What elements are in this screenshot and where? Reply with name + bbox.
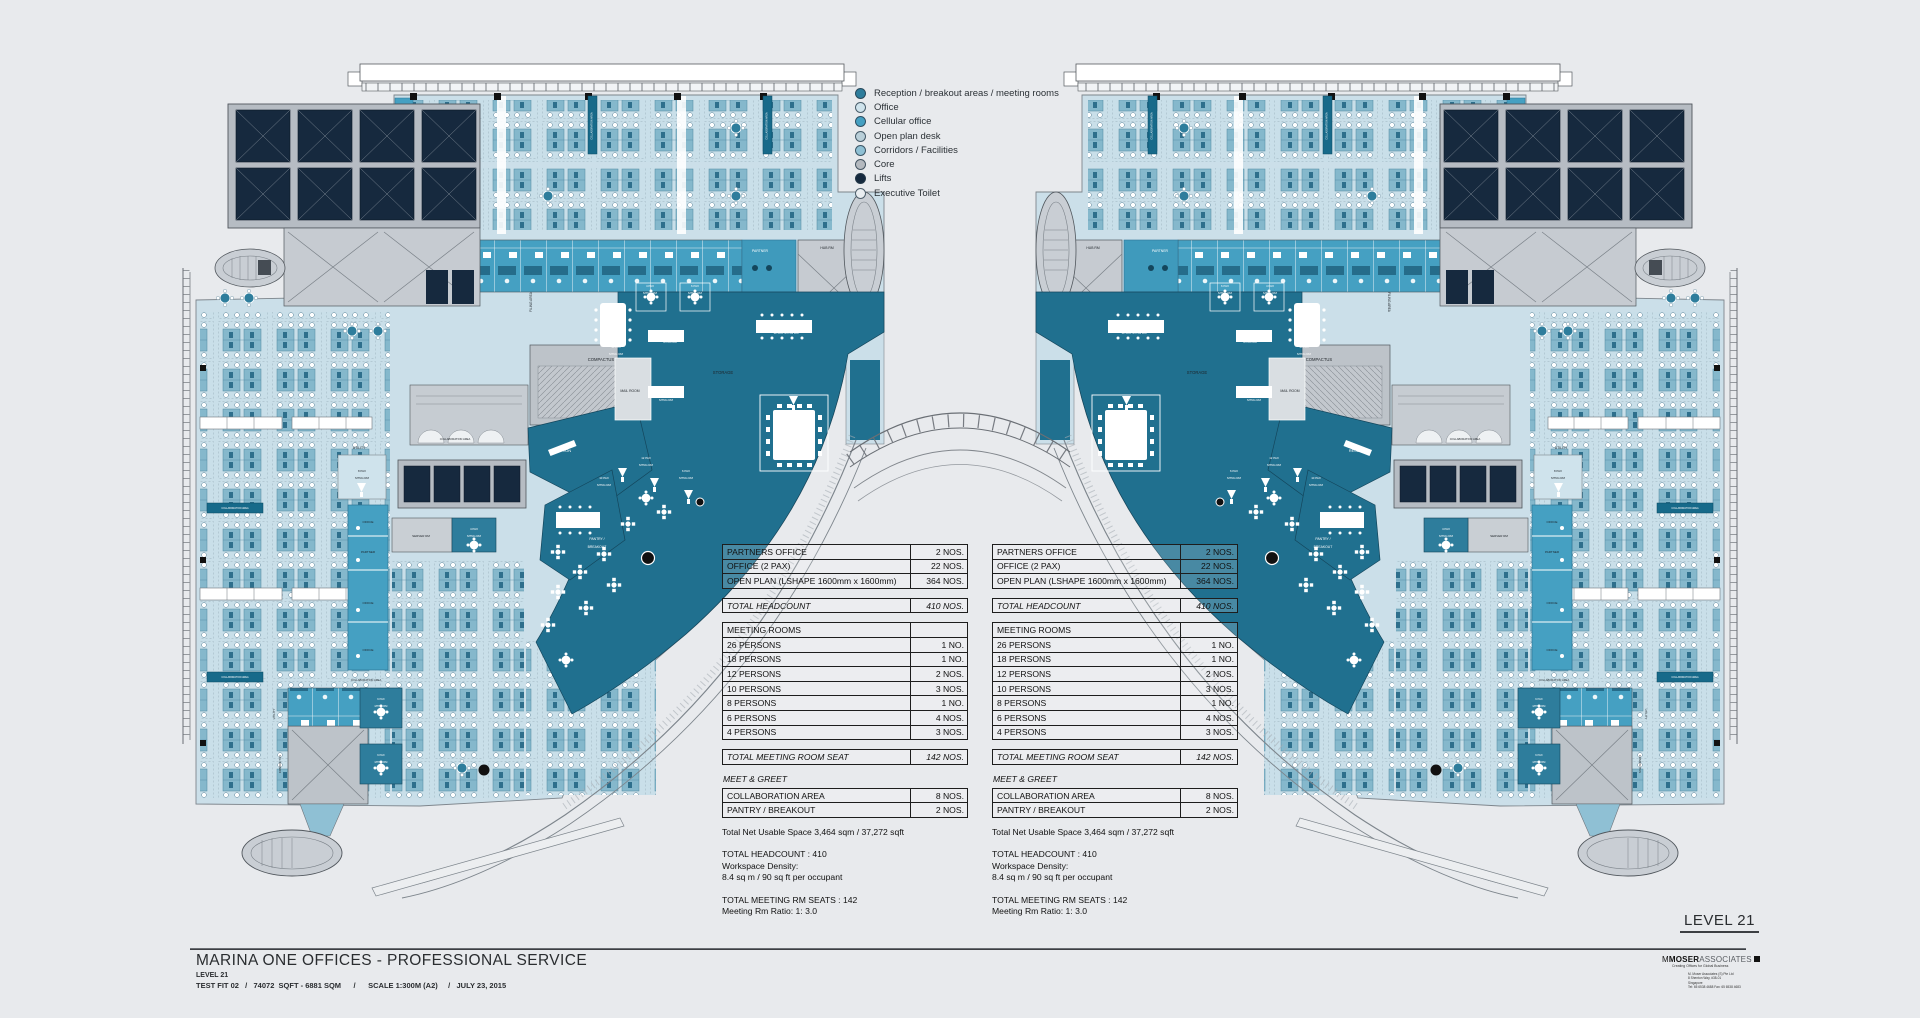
table-cell-label: PARTNERS OFFICE (723, 545, 911, 559)
legend-label: Cellular office (874, 116, 931, 127)
plan-room-label: 4 PAX (470, 527, 478, 531)
table-row: MEETING ROOMS (723, 623, 967, 638)
plan-room-label: 8 PAX (1554, 469, 1562, 473)
plan-room-label: COMPACTUS (278, 755, 282, 773)
legend-label: Executive Toilet (874, 188, 940, 199)
logo-square-icon (1754, 956, 1760, 962)
plan-room-label: FILING AREA (1387, 292, 1391, 313)
table-cell-value: 364 NOS. (1181, 574, 1237, 588)
plan-room-label: FILING AREA (529, 291, 533, 312)
plan-room-label: MTNG RM (1243, 340, 1257, 344)
plan-room-label: COLLABORATION AREA (221, 676, 249, 679)
table-row: TOTAL MEETING ROOM SEAT142 NOS. (723, 750, 967, 764)
plan-room-label: 12 PAX (1269, 456, 1279, 460)
table-section: PARTNERS OFFICE2 NOS.OFFICE (2 PAX)22 NO… (992, 544, 1238, 589)
table-row: 12 PERSONS2 NOS. (993, 667, 1237, 682)
legend-label: Corridors / Facilities (874, 145, 958, 156)
table-cell-label: TOTAL HEADCOUNT (993, 599, 1181, 613)
legend-swatch (855, 131, 866, 142)
table-cell-value: 3 NOS. (911, 726, 967, 740)
plan-room-label: MTNG RM (1218, 291, 1232, 295)
title-level: LEVEL 21 (196, 972, 587, 979)
table-row: 10 PERSONS3 NOS. (723, 682, 967, 697)
project-title: MARINA ONE OFFICES - PROFESSIONAL SERVIC… (196, 952, 587, 970)
table-row: COLLABORATION AREA8 NOS. (723, 789, 967, 804)
table-section: MEETING ROOMS26 PERSONS1 NO.18 PERSONS1 … (722, 622, 968, 740)
plan-room-label: 6 PAX (377, 697, 385, 701)
table-row: PARTNERS OFFICE2 NOS. (723, 545, 967, 560)
plan-room-label: MTNG RM (467, 534, 481, 538)
plan-room-label: MAIL ROOM (1280, 389, 1299, 393)
plan-room-label: 18 PAX (611, 345, 621, 349)
table-cell-value: 3 NOS. (1181, 682, 1237, 696)
table-cell-value: 410 NOS. (1181, 599, 1237, 613)
plan-room-label: COLLABORATION AREA (1539, 678, 1570, 682)
plan-room-label: OFFICE (363, 520, 374, 524)
table-row: OPEN PLAN (LSHAPE 1600mm x 1600mm)364 NO… (993, 574, 1237, 588)
summary-note: TOTAL HEADCOUNT : 410 (722, 849, 968, 861)
plan-room-label: UTILITY (1555, 446, 1568, 450)
plan-room-label: OFFICE (1547, 601, 1558, 605)
plan-room-label: COMPACTUS (588, 357, 615, 362)
plan-room-label: 4 PAX (1442, 527, 1450, 531)
plan-room-label: 10 PAX (665, 333, 675, 337)
logo-address: M. Moser Associates (S) Pte Ltd8 Shenton… (1688, 972, 1760, 989)
table-cell-label: PANTRY / BREAKOUT (993, 803, 1181, 817)
plan-room-label: OFFICE (363, 648, 374, 652)
table-row: COLLABORATION AREA8 NOS. (993, 789, 1237, 804)
table-row: 4 PERSONS3 NOS. (723, 726, 967, 740)
table-cell-value: 22 NOS. (911, 560, 967, 574)
plan-room-label: PANTRY / (1315, 537, 1330, 541)
table-cell-label: 12 PERSONS (723, 667, 911, 681)
plan-room-label: 10 PAX (1245, 333, 1255, 337)
table-row: 26 PERSONS1 NO. (993, 638, 1237, 653)
table-cell-label: 10 PERSONS (993, 682, 1181, 696)
plan-room-label: COMPACTUS (1306, 357, 1333, 362)
plan-room-label: 10 PAX (599, 476, 609, 480)
plan-room-label: MTNG RM (355, 476, 369, 480)
table-cell-value: 1 NO. (911, 653, 967, 667)
plan-room-label: 12 PAX MTNG RM (1121, 331, 1147, 335)
table-cell-label: 8 PERSONS (993, 696, 1181, 710)
legend-swatch (855, 173, 866, 184)
headcount-table-left: PARTNERS OFFICE2 NOS.OFFICE (2 PAX)22 NO… (722, 544, 968, 918)
table-section: TOTAL HEADCOUNT410 NOS. (992, 598, 1238, 614)
table-row: TOTAL MEETING ROOM SEAT142 NOS. (993, 750, 1237, 764)
table-row: 8 PERSONS1 NO. (723, 696, 967, 711)
table-cell-value: 2 NOS. (911, 803, 967, 817)
plan-room-label: 12 PAX MTNG RM (773, 331, 799, 335)
plan-room-label: PARTNER (361, 550, 376, 554)
table-cell-label: 6 PERSONS (993, 711, 1181, 725)
summary-note: Total Net Usable Space 3,464 sqm / 37,27… (992, 827, 1238, 839)
legend-label: Office (874, 102, 899, 113)
plan-room-label: COLLABORATION AREA (221, 507, 249, 510)
plan-room-label: MAIL ROOM (620, 389, 639, 393)
table-row: OFFICE (2 PAX)22 NOS. (993, 560, 1237, 575)
table-section: TOTAL HEADCOUNT410 NOS. (722, 598, 968, 614)
plan-room-label: COMPACTUS (1638, 755, 1642, 773)
plan-room-label: PARTNER (1152, 249, 1168, 253)
table-cell-value: 22 NOS. (1181, 560, 1237, 574)
summary-note: TOTAL HEADCOUNT : 410 (992, 849, 1238, 861)
plan-room-label: MTNG RM (609, 352, 623, 356)
table-cell-label: OPEN PLAN (LSHAPE 1600mm x 1600mm) (993, 574, 1181, 588)
plan-room-label: 4 PAX (1266, 284, 1274, 288)
summary-note: 8.4 sq m / 90 sq ft per occupant (722, 872, 968, 884)
plan-room-label: COLLABORATION AREA (351, 678, 382, 682)
plan-room-label: 6 PAX (1535, 753, 1543, 757)
summary-note: Meeting Rm Ratio: 1: 3.0 (992, 906, 1238, 918)
table-cell-value: 2 NOS. (1181, 667, 1237, 681)
legend-swatch (855, 145, 866, 156)
table-cell-label: 6 PERSONS (723, 711, 911, 725)
table-cell-value: 4 NOS. (911, 711, 967, 725)
table-cell-value: 1 NO. (911, 696, 967, 710)
title-block: MARINA ONE OFFICES - PROFESSIONAL SERVIC… (196, 952, 587, 990)
plan-room-label: COLLABORATION AREA (591, 112, 594, 140)
legend-item: Core (855, 157, 1059, 171)
plan-room-label: MTNG RM (1247, 398, 1261, 402)
table-section-heading: MEET & GREET (723, 774, 968, 785)
plan-room-label: 6 PAX (1221, 284, 1229, 288)
drawing-sheet: COMPACTUSSTORAGEPARTNERHUB RMFILING AREA… (0, 0, 1920, 1018)
table-cell-label: 18 PERSONS (993, 653, 1181, 667)
plan-room-label: HUB RM (1086, 246, 1100, 250)
table-cell-value: 364 NOS. (911, 574, 967, 588)
plan-room-label: 6 PAX (682, 469, 690, 473)
logo-tagline: Creating Offices for Global Business (1672, 964, 1760, 968)
table-cell-value: 4 NOS. (1181, 711, 1237, 725)
table-cell-value: 3 NOS. (1181, 726, 1237, 740)
plan-room-label: MTNG RM (1309, 483, 1323, 487)
plan-room-label: MTNG RM (1533, 760, 1547, 764)
table-cell-value: 410 NOS. (911, 599, 967, 613)
table-cell-value: 1 NO. (911, 638, 967, 652)
legend-swatch (855, 116, 866, 127)
plan-room-label: COLLABORATION AREA (1671, 507, 1699, 510)
table-cell-label: PANTRY / BREAKOUT (723, 803, 911, 817)
table-cell-label: TOTAL MEETING ROOM SEAT (723, 750, 911, 764)
plan-room-label: 6 PAX (377, 753, 385, 757)
plan-room-label: MTNG RM (1551, 476, 1565, 480)
table-cell-label: 10 PERSONS (723, 682, 911, 696)
table-section: TOTAL MEETING ROOM SEAT142 NOS. (992, 749, 1238, 765)
summary-notes: Total Net Usable Space 3,464 sqm / 37,27… (992, 827, 1238, 918)
plan-room-label: RECEPTION (1349, 449, 1371, 453)
plan-room-label: MTNG RM (375, 760, 389, 764)
plan-room-label: SERVER RM (1490, 534, 1508, 538)
table-row: PANTRY / BREAKOUT2 NOS. (723, 803, 967, 817)
legend-item: Cellular office (855, 115, 1059, 129)
table-cell-label: 12 PERSONS (993, 667, 1181, 681)
plan-room-label: MTNG RM (663, 340, 677, 344)
plan-room-label: 18 PAX (1299, 345, 1309, 349)
plan-room-label: UTILITY (1644, 709, 1648, 720)
table-cell-value: 3 NOS. (911, 682, 967, 696)
plan-room-label: PARTNER (752, 249, 768, 253)
plan-room-label: STORAGE (713, 370, 734, 375)
table-cell-label: OFFICE (2 PAX) (993, 560, 1181, 574)
plan-room-label: MTNG RM (679, 476, 693, 480)
table-cell-label: 4 PERSONS (993, 726, 1181, 740)
table-cell-label: MEETING ROOMS (723, 623, 911, 637)
table-row: 26 PERSONS1 NO. (723, 638, 967, 653)
table-row: OPEN PLAN (LSHAPE 1600mm x 1600mm)364 NO… (723, 574, 967, 588)
table-cell-label: MEETING ROOMS (993, 623, 1181, 637)
architect-logo: MMOSERASSOCIATES Creating Offices for Gl… (1662, 955, 1760, 989)
legend-item: Open plan desk (855, 129, 1059, 143)
table-cell-value: 2 NOS. (1181, 803, 1237, 817)
table-row: TOTAL HEADCOUNT410 NOS. (723, 599, 967, 613)
legend-label: Reception / breakout areas / meeting roo… (874, 88, 1059, 99)
plan-room-label: 10 PAX (1249, 391, 1259, 395)
legend-item: Lifts (855, 172, 1059, 186)
table-cell-label: 4 PERSONS (723, 726, 911, 740)
table-section: COLLABORATION AREA8 NOS.PANTRY / BREAKOU… (992, 788, 1238, 818)
headcount-table-right: PARTNERS OFFICE2 NOS.OFFICE (2 PAX)22 NO… (992, 544, 1238, 918)
plan-room-label: 26 PAX (1119, 425, 1130, 429)
table-cell-value: 142 NOS. (1181, 750, 1237, 764)
table-cell-value (1181, 623, 1237, 637)
summary-notes: Total Net Usable Space 3,464 sqm / 37,27… (722, 827, 968, 918)
plan-room-label: MTNG RM (1533, 704, 1547, 708)
table-row: 6 PERSONS4 NOS. (723, 711, 967, 726)
legend-swatch (855, 102, 866, 113)
legend-swatch (855, 159, 866, 170)
logo-wordmark: MMOSERASSOCIATES (1662, 955, 1760, 964)
table-section: PARTNERS OFFICE2 NOS.OFFICE (2 PAX)22 NO… (722, 544, 968, 589)
plan-room-label: MTNG RM (639, 463, 653, 467)
plan-room-label: 12 PAX (641, 456, 651, 460)
table-cell-value: 1 NO. (1181, 638, 1237, 652)
plan-room-label: PANTRY / (589, 537, 604, 541)
plan-room-label: MTNG RM (375, 704, 389, 708)
title-details: TEST FIT 02 / 74072 SQFT - 6881 SQM / SC… (196, 981, 587, 990)
plan-room-label: BOARDROOM (785, 433, 807, 437)
table-section-heading: MEET & GREET (993, 774, 1238, 785)
plan-room-label: HUB RM (820, 246, 834, 250)
table-row: 12 PERSONS2 NOS. (723, 667, 967, 682)
table-row: PARTNERS OFFICE2 NOS. (993, 545, 1237, 560)
plan-room-label: OFFICE (363, 601, 374, 605)
table-cell-label: 18 PERSONS (723, 653, 911, 667)
plan-room-label: COLLABORATION AREA (766, 112, 769, 140)
plan-room-label: OFFICE (1547, 648, 1558, 652)
table-cell-value: 2 NOS. (911, 545, 967, 559)
legend-label: Lifts (874, 173, 891, 184)
plan-room-label: 6 PAX (691, 284, 699, 288)
plan-room-label: MTNG RM (643, 291, 657, 295)
legend-item: Office (855, 100, 1059, 114)
level-badge: LEVEL 21 (1680, 912, 1759, 933)
table-section: COLLABORATION AREA8 NOS.PANTRY / BREAKOU… (722, 788, 968, 818)
summary-note: Workspace Density: (992, 861, 1238, 873)
table-row: 18 PERSONS1 NO. (723, 653, 967, 668)
legend-item: Corridors / Facilities (855, 143, 1059, 157)
table-cell-value: 142 NOS. (911, 750, 967, 764)
plan-room-label: RECEPTION (549, 449, 571, 453)
table-row: 4 PERSONS3 NOS. (993, 726, 1237, 740)
table-cell-label: COLLABORATION AREA (723, 789, 911, 803)
table-cell-label: PARTNERS OFFICE (993, 545, 1181, 559)
plan-room-label: BREAKOUT (588, 545, 607, 549)
table-cell-label: 8 PERSONS (723, 696, 911, 710)
legend-label: Core (874, 159, 895, 170)
table-row: OFFICE (2 PAX)22 NOS. (723, 560, 967, 575)
plan-room-label: COLLABORATION AREA (440, 437, 471, 441)
table-cell-value (911, 623, 967, 637)
plan-room-label: SERVER RM (412, 534, 430, 538)
plan-room-label: MTNG RM (1297, 352, 1311, 356)
plan-room-label: UTILITY (353, 446, 366, 450)
table-cell-label: TOTAL HEADCOUNT (723, 599, 911, 613)
plan-room-label: BOARDROOM (1113, 433, 1135, 437)
plan-room-label: MTNG RM (1263, 291, 1277, 295)
summary-note: Total Net Usable Space 3,464 sqm / 37,27… (722, 827, 968, 839)
table-cell-label: 26 PERSONS (993, 638, 1181, 652)
plan-room-label: PARTNER (1545, 550, 1560, 554)
table-cell-value: 8 NOS. (1181, 789, 1237, 803)
table-section: MEETING ROOMS26 PERSONS1 NO.18 PERSONS1 … (992, 622, 1238, 740)
table-section: TOTAL MEETING ROOM SEAT142 NOS. (722, 749, 968, 765)
title-rule (190, 948, 1746, 950)
table-cell-label: OFFICE (2 PAX) (723, 560, 911, 574)
table-cell-label: 26 PERSONS (723, 638, 911, 652)
legend-item: Reception / breakout areas / meeting roo… (855, 86, 1059, 100)
summary-note: TOTAL MEETING RM SEATS : 142 (992, 895, 1238, 907)
plan-room-label: 6 PAX (1230, 469, 1238, 473)
table-cell-value: 1 NO. (1181, 696, 1237, 710)
legend-label: Open plan desk (874, 131, 941, 142)
plan-room-label: COLLABORATION AREA (1326, 112, 1329, 140)
table-cell-value: 2 NOS. (911, 667, 967, 681)
legend-item: Executive Toilet (855, 186, 1059, 200)
plan-room-label: 6 PAX (1535, 697, 1543, 701)
table-cell-label: COLLABORATION AREA (993, 789, 1181, 803)
legend-swatch (855, 188, 866, 199)
plan-room-label: STORAGE (1187, 370, 1208, 375)
table-cell-value: 2 NOS. (1181, 545, 1237, 559)
plan-room-label: COLLABORATION AREA (1151, 112, 1154, 140)
table-row: 8 PERSONS1 NO. (993, 696, 1237, 711)
table-cell-value: 8 NOS. (911, 789, 967, 803)
plan-room-label: MTNG RM (659, 398, 673, 402)
plan-room-label: MTNG RM (597, 483, 611, 487)
table-row: TOTAL HEADCOUNT410 NOS. (993, 599, 1237, 613)
plan-room-label: 10 PAX (661, 391, 671, 395)
summary-note: Meeting Rm Ratio: 1: 3.0 (722, 906, 968, 918)
legend-swatch (855, 88, 866, 99)
legend: Reception / breakout areas / meeting roo… (855, 86, 1059, 200)
table-cell-label: OPEN PLAN (LSHAPE 1600mm x 1600mm) (723, 574, 911, 588)
table-row: PANTRY / BREAKOUT2 NOS. (993, 803, 1237, 817)
plan-room-label: MTNG RM (1227, 476, 1241, 480)
table-row: 10 PERSONS3 NOS. (993, 682, 1237, 697)
plan-room-label: BREAKOUT (1314, 545, 1333, 549)
table-cell-label: TOTAL MEETING ROOM SEAT (993, 750, 1181, 764)
plan-room-label: OFFICE (1547, 520, 1558, 524)
summary-note: TOTAL MEETING RM SEATS : 142 (722, 895, 968, 907)
plan-room-label: MTNG RM (688, 291, 702, 295)
table-row: 6 PERSONS4 NOS. (993, 711, 1237, 726)
plan-room-label: UTILITY (272, 709, 276, 720)
summary-note: 8.4 sq m / 90 sq ft per occupant (992, 872, 1238, 884)
plan-room-label: 8 PAX (358, 469, 366, 473)
table-row: 18 PERSONS1 NO. (993, 653, 1237, 668)
plan-room-label: COLLABORATION AREA (1671, 676, 1699, 679)
summary-note: Workspace Density: (722, 861, 968, 873)
plan-room-label: 4 PAX (646, 284, 654, 288)
plan-room-label: COLLABORATION AREA (1450, 437, 1481, 441)
plan-room-label: MTNG RM (1439, 534, 1453, 538)
plan-room-label: 10 PAX (1311, 476, 1321, 480)
plan-room-label: 26 PAX (791, 425, 802, 429)
table-row: MEETING ROOMS (993, 623, 1237, 638)
plan-room-label: MTNG RM (1267, 463, 1281, 467)
table-cell-value: 1 NO. (1181, 653, 1237, 667)
